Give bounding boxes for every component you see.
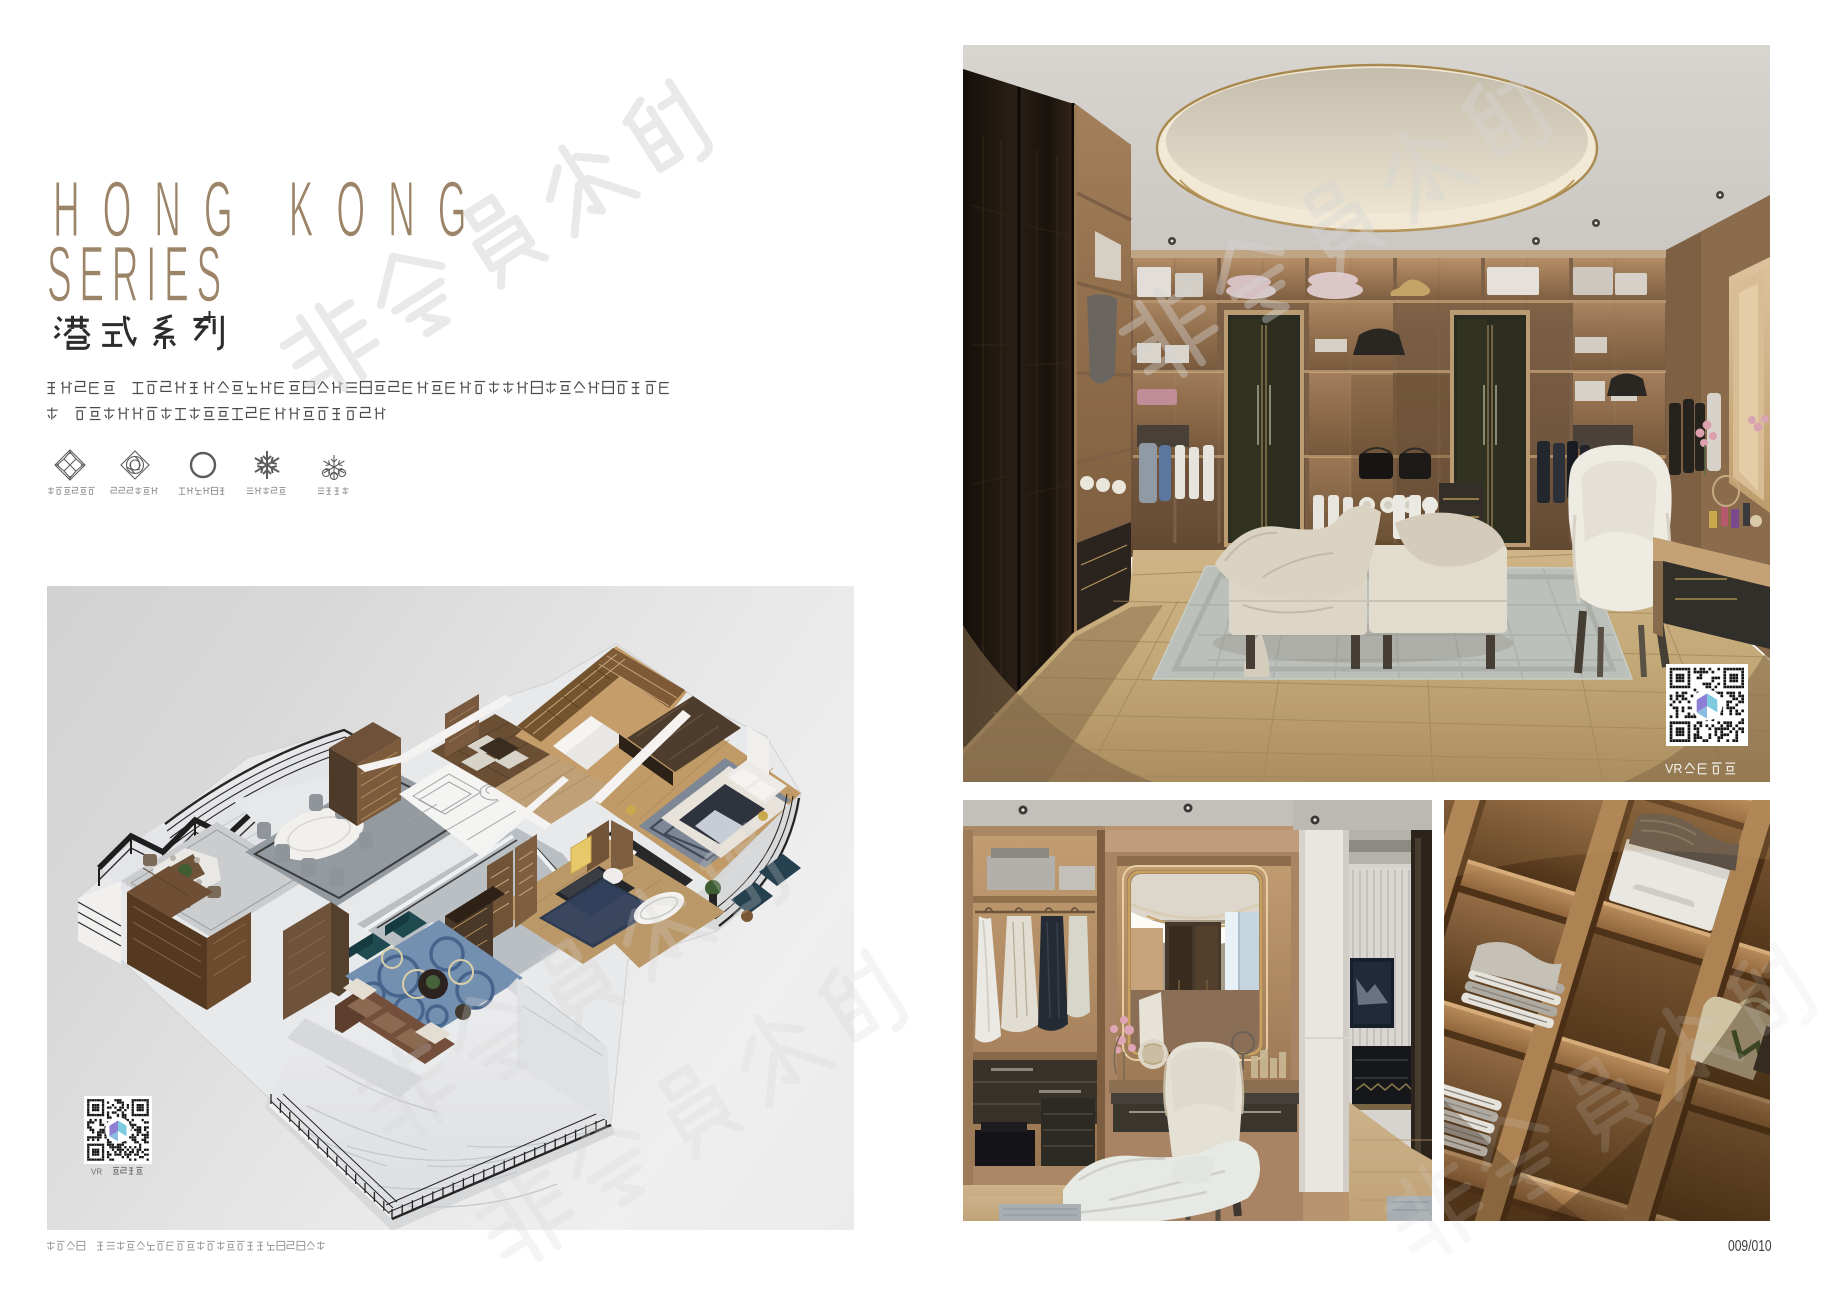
- svg-text:VR: VR: [91, 1168, 102, 1177]
- svg-text:VR: VR: [1665, 762, 1682, 776]
- svg-text:SERIES: SERIES: [47, 231, 229, 319]
- svg-text:009/010: 009/010: [1728, 1237, 1772, 1255]
